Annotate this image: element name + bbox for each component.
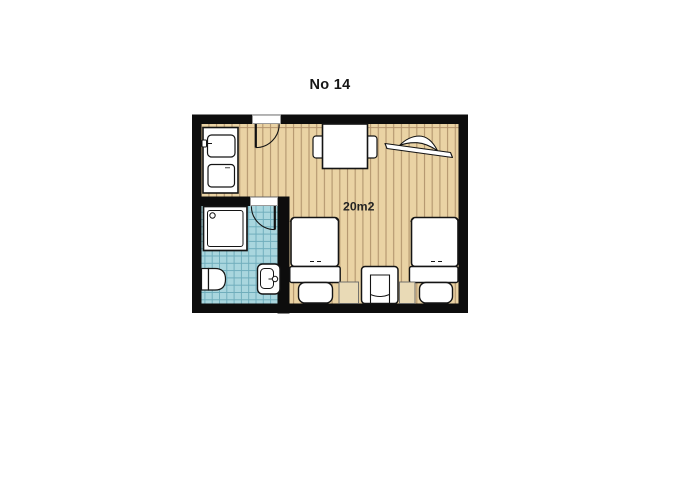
bathroom-door-threshold bbox=[251, 197, 278, 205]
toilet-bowl bbox=[209, 269, 226, 291]
wall-top bbox=[192, 115, 468, 125]
bathroom-sink bbox=[258, 264, 281, 294]
shower-drain bbox=[210, 213, 215, 218]
sink-faucet bbox=[272, 276, 277, 281]
kitchenette-appliance bbox=[208, 165, 235, 188]
floor-plan: 20m2 bbox=[192, 115, 468, 314]
dining-table bbox=[323, 124, 368, 169]
toilet-tank bbox=[202, 269, 209, 291]
bed-right-blanket-fold bbox=[410, 267, 459, 283]
toilet bbox=[202, 269, 226, 291]
room-number-title: No 14 bbox=[310, 77, 351, 93]
armchair-body bbox=[362, 267, 399, 304]
wall-bottom bbox=[192, 304, 468, 314]
room-area-label: 20m2 bbox=[343, 200, 375, 214]
bathroom-wall-right bbox=[278, 197, 290, 314]
bed-left-mattress bbox=[291, 218, 339, 267]
nightstand-left bbox=[339, 282, 359, 304]
bed-left-pillow bbox=[299, 283, 333, 304]
dining-set bbox=[313, 124, 377, 169]
bed-right-mattress bbox=[412, 218, 459, 267]
shower-tray bbox=[204, 207, 248, 251]
bed-right-pillow bbox=[420, 283, 453, 304]
nightstand-right bbox=[400, 282, 416, 304]
bed-left-blanket-fold bbox=[290, 267, 340, 283]
entry-door-threshold bbox=[253, 115, 281, 123]
floor-plan-image: No 14 bbox=[0, 0, 700, 500]
kitchenette-faucet bbox=[202, 140, 207, 147]
wall-left bbox=[192, 115, 202, 314]
armchair bbox=[362, 267, 399, 304]
kitchenette-sink-basin bbox=[208, 135, 236, 157]
wall-right bbox=[459, 115, 469, 314]
shower bbox=[204, 207, 248, 251]
kitchenette-unit bbox=[202, 128, 238, 194]
